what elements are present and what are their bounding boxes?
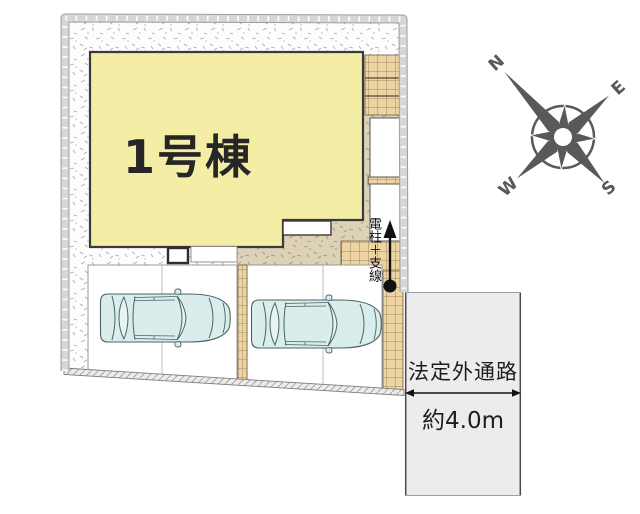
- compass-north-label: N: [485, 51, 509, 75]
- compass-west-label: W: [495, 173, 523, 201]
- site-plan-drawing: N E W S: [0, 0, 640, 514]
- entry-step: [191, 247, 237, 263]
- car-icon: [101, 289, 231, 347]
- road-width-label: 約4.0m: [404, 401, 522, 435]
- car-icon: [252, 295, 382, 353]
- site-plan: N E W S 1号棟 電柱＋支線 法定外通路 約4.0m: [0, 0, 640, 514]
- compass-east-label: E: [608, 77, 630, 100]
- utility-meter-box: [168, 248, 188, 263]
- road-area: [405, 292, 521, 496]
- road-name-label: 法定外通路: [404, 356, 522, 386]
- utility-pole-label: 電柱＋支線: [364, 217, 383, 291]
- entrance-porch: [283, 221, 331, 235]
- building-label: 1号棟: [90, 110, 286, 198]
- compass-icon: N E W S: [428, 3, 640, 252]
